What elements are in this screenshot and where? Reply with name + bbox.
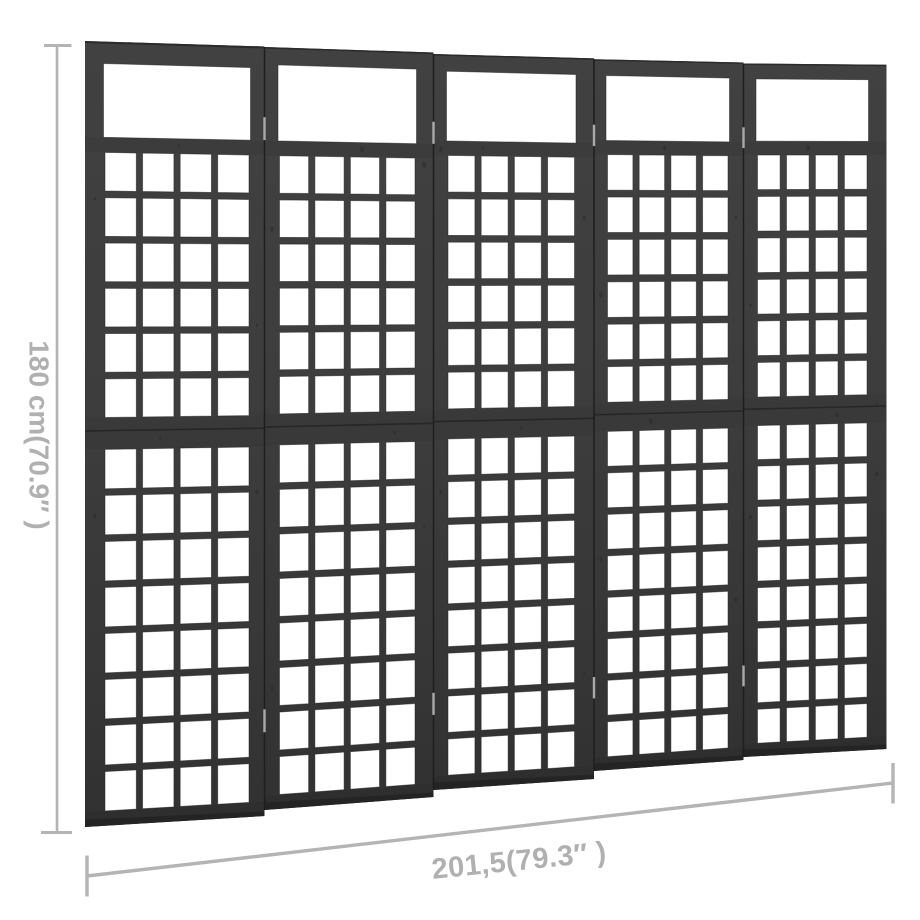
svg-text:180 cm(70.9″ ): 180 cm(70.9″ ) xyxy=(24,340,55,529)
